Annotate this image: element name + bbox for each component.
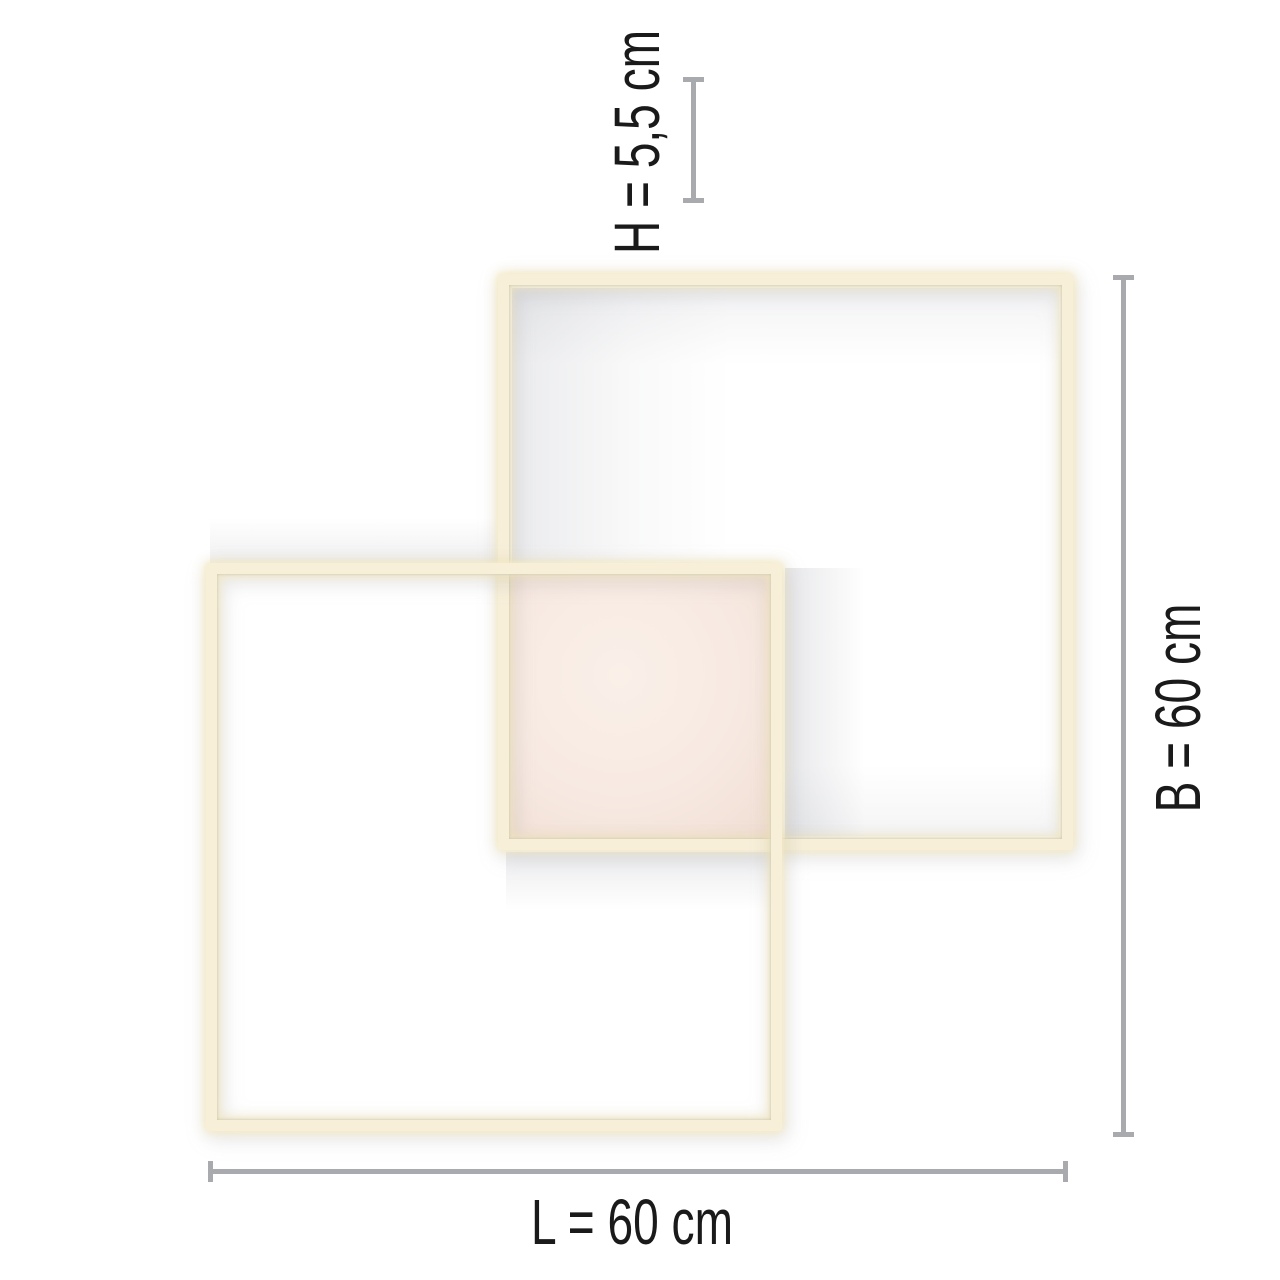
product-diagram-canvas: H = 5,5 cm B = 60 cm L = 60 cm bbox=[0, 0, 1280, 1280]
width-dimension-label: B = 60 cm bbox=[1141, 604, 1215, 813]
width-dimension-line bbox=[1121, 275, 1126, 1137]
height-dimension-line bbox=[691, 77, 696, 203]
length-dimension-line bbox=[208, 1169, 1068, 1174]
length-dimension-label: L = 60 cm bbox=[531, 1185, 733, 1259]
shadow-above-lower-frame bbox=[210, 518, 500, 563]
height-dimension-label: H = 5,5 cm bbox=[600, 30, 674, 254]
lower-left-square-frame bbox=[206, 563, 782, 1131]
